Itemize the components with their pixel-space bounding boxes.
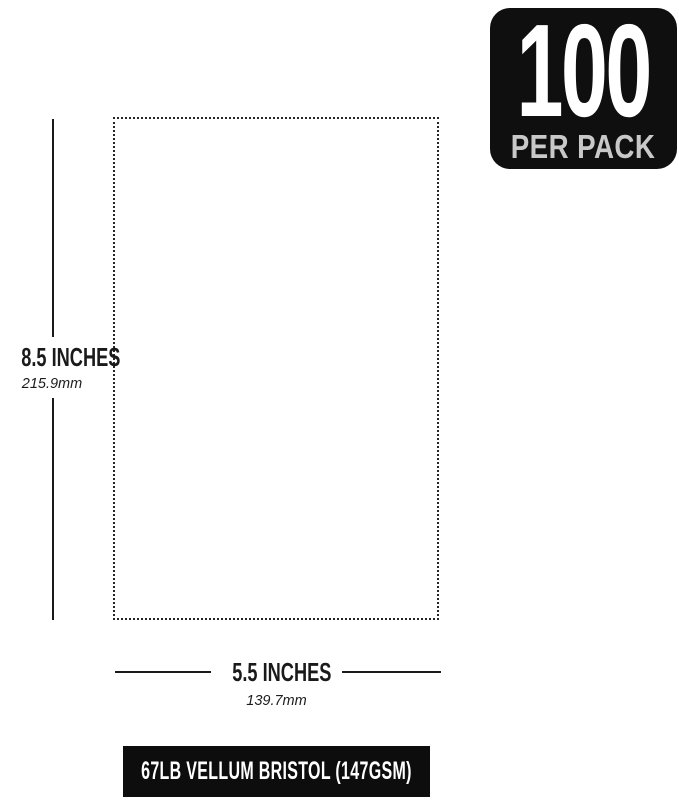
height-metric-label: 215.9mm — [0, 377, 104, 392]
width-dimension-line-left — [115, 671, 211, 673]
width-dimension-line-right — [342, 671, 441, 673]
paper-sheet-outline — [113, 117, 439, 620]
per-pack-badge: 100 PER PACK — [490, 8, 677, 169]
width-metric-label: 139.7mm — [211, 694, 342, 709]
height-dimension-line-bottom — [52, 398, 54, 620]
height-dimension-line-top — [52, 119, 54, 337]
height-dimension-label-group: 8.5 INCHES 215.9mm — [0, 344, 104, 392]
pack-count-label: PER PACK — [511, 130, 656, 163]
paper-spec-label: 67LB VELLUM BRISTOL (147GSM) — [141, 759, 412, 784]
height-label: 8.5 INCHES — [21, 344, 120, 370]
width-dimension-label-group: 5.5 INCHES 139.7mm — [211, 659, 342, 709]
width-label: 5.5 INCHES — [232, 659, 331, 685]
paper-spec-bar: 67LB VELLUM BRISTOL (147GSM) — [123, 746, 430, 797]
product-infographic: 8.5 INCHES 215.9mm 5.5 INCHES 139.7mm 10… — [0, 0, 679, 801]
pack-count: 100 — [517, 14, 650, 128]
